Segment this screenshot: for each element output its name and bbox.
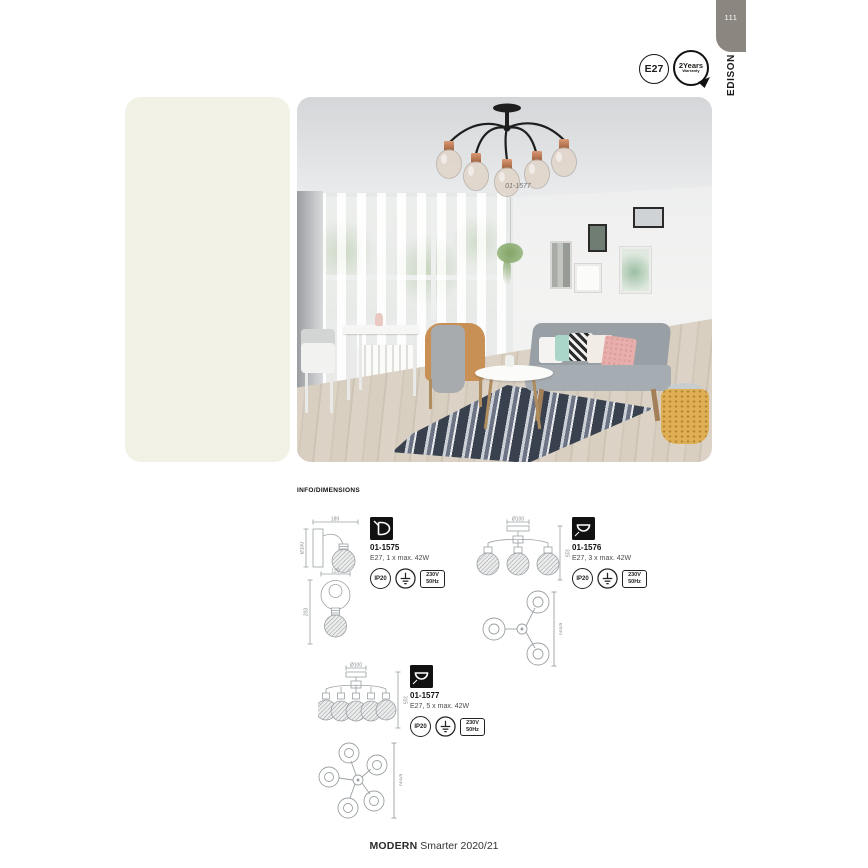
photo-product-label: 01-1577 xyxy=(483,183,553,190)
wicker-basket xyxy=(661,389,709,444)
table-leg xyxy=(359,334,362,390)
wall-frame-forest xyxy=(588,224,607,252)
coffee-table xyxy=(475,365,553,381)
footer-edition: Smarter 2020/21 xyxy=(420,840,498,852)
wall-frame-trees xyxy=(550,241,572,289)
ceiling-light-icon xyxy=(410,665,433,688)
table-vase xyxy=(375,313,383,326)
hanging-plant xyxy=(497,243,523,263)
voltage-line2: 50Hz xyxy=(628,579,641,585)
svg-text:189: 189 xyxy=(331,517,340,523)
earthing-icon xyxy=(597,568,618,589)
svg-text:Ø530: Ø530 xyxy=(558,623,563,635)
voltage-icon: 230V 50Hz xyxy=(460,718,485,736)
warranty-word: Warranty xyxy=(682,69,699,74)
chair-leg xyxy=(330,373,333,413)
wall-frame-city xyxy=(633,207,664,228)
voltage-icon: 230V 50Hz xyxy=(420,570,445,588)
info-dimensions-header: INFO/DIMENSIONS xyxy=(297,487,360,494)
product-code: 01-1576 xyxy=(572,543,601,552)
drawing-1576-front: Ø100 315 xyxy=(470,514,570,592)
wall-frame-blank xyxy=(575,264,601,292)
cream-panel xyxy=(125,97,290,462)
chair-leg xyxy=(479,377,482,407)
section-tab: EDISON xyxy=(716,54,746,124)
section-tab-label: EDISON xyxy=(726,54,737,96)
svg-text:120: 120 xyxy=(331,569,340,575)
chair-leg xyxy=(305,373,308,413)
page-footer: MODERN Smarter 2020/21 xyxy=(0,840,868,852)
ip-rating-icon: IP20 xyxy=(410,716,431,737)
svg-text:Ø100: Ø100 xyxy=(300,542,306,554)
table-leg xyxy=(347,334,350,400)
voltage-icon: 230V 50Hz xyxy=(622,570,647,588)
warranty-badge: 2Years Warranty xyxy=(673,50,709,86)
socket-type-badge: E27 xyxy=(639,54,669,84)
drawing-1575-side: 189 Ø100 xyxy=(300,516,366,574)
svg-text:315: 315 xyxy=(564,549,570,558)
drawing-1577-top: Ø530 xyxy=(312,740,402,822)
voltage-line2: 50Hz xyxy=(426,579,439,585)
ceiling-light-icon xyxy=(572,517,595,540)
gray-blanket xyxy=(431,325,465,393)
earthing-icon xyxy=(395,568,416,589)
ip-rating-icon: IP20 xyxy=(370,568,391,589)
page-number: 111 xyxy=(725,13,738,22)
ip-rating-icon: IP20 xyxy=(572,568,593,589)
svg-text:Ø530: Ø530 xyxy=(398,774,403,786)
drawing-1576-top: Ø530 xyxy=(482,588,562,670)
product-spec: E27, 5 x max. 42W xyxy=(410,703,469,710)
footer-brand: MODERN xyxy=(369,840,417,852)
product-code: 01-1575 xyxy=(370,543,399,552)
page-number-tab: 111 xyxy=(716,0,746,52)
svg-text:Ø100: Ø100 xyxy=(350,663,362,669)
svg-text:315: 315 xyxy=(402,696,408,705)
white-chair xyxy=(301,329,335,373)
cert-row-1576: IP20 230V 50Hz xyxy=(572,568,647,589)
chair-leg xyxy=(429,379,432,409)
wall-light-icon xyxy=(370,517,393,540)
coffee-table-vase xyxy=(505,355,514,367)
drawing-1577-front: Ø100 315 xyxy=(318,660,408,740)
drawing-1575-front: 120 203 xyxy=(302,568,356,652)
catalog-page: 111 EDISON E27 2Years Warranty xyxy=(0,0,868,868)
socket-type-label: E27 xyxy=(645,63,664,75)
product-code: 01-1577 xyxy=(410,691,439,700)
room-photo: 01-1577 xyxy=(297,97,712,462)
dining-table xyxy=(343,325,419,334)
cert-row-1577: IP20 230V 50Hz xyxy=(410,716,485,737)
product-spec: E27, 3 x max. 42W xyxy=(572,555,631,562)
table-leg xyxy=(413,334,416,396)
plant-trail xyxy=(503,259,511,285)
svg-text:203: 203 xyxy=(304,608,310,617)
voltage-line2: 50Hz xyxy=(466,727,479,733)
product-spec: E27, 1 x max. 42W xyxy=(370,555,429,562)
earthing-icon xyxy=(435,716,456,737)
cert-row-1575: IP20 230V 50Hz xyxy=(370,568,445,589)
svg-text:Ø100: Ø100 xyxy=(512,517,524,523)
wall-frame-green-art xyxy=(620,247,651,293)
plant-hanger xyxy=(510,197,511,249)
